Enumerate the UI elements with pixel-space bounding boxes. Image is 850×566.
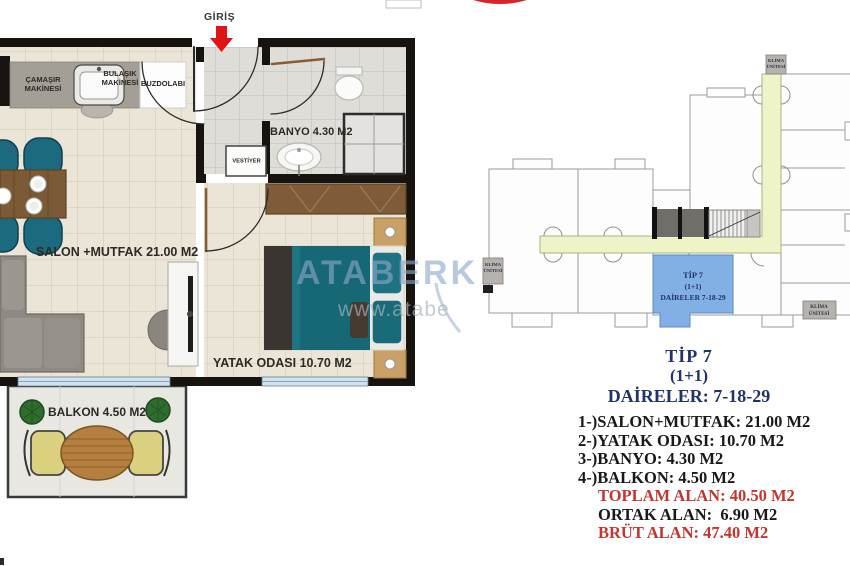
room-area-item: 3-)BANYO: 4.30 M2: [578, 450, 825, 469]
balcony: [8, 386, 186, 497]
living-room-label: SALON +MUTFAK 21.00 M2: [36, 245, 198, 259]
elevators: [652, 207, 709, 239]
entrance-label: GİRİŞ: [204, 11, 235, 23]
washer-label: ÇAMAŞIR MAKİNESİ: [12, 75, 74, 93]
watermark-url: www.atabe: [338, 298, 450, 322]
bedroom-label: YATAK ODASI 10.70 M2: [213, 356, 352, 370]
stairs-icon: [709, 210, 760, 237]
apartment-floor-plan: [0, 26, 415, 565]
room-area-list: 1-)SALON+MUTFAK: 21.00 M2 2-)YATAK ODASI…: [578, 413, 825, 487]
cropped-frame: [386, 0, 421, 8]
fridge-label: BUZDOLABI: [137, 79, 189, 88]
svg-text:KLİMA: KLİMA: [485, 262, 502, 267]
highlighted-unit-tip7: [653, 255, 733, 327]
balcony-label: BALKON 4.50 M2: [48, 405, 146, 419]
balcony-chair: [31, 431, 65, 475]
unit-plan-type: (1+1): [553, 367, 825, 385]
room-area-item: 1-)SALON+MUTFAK: 21.00 M2: [578, 413, 825, 432]
wardrobe-icon: [266, 184, 406, 214]
dining-chair: [0, 214, 18, 252]
svg-text:(1+1): (1+1): [685, 282, 702, 291]
closet-label: VESTİYER: [232, 157, 259, 163]
total-area: TOPLAM ALAN: 40.50 M2: [598, 487, 825, 506]
svg-text:KLİMA: KLİMA: [768, 58, 785, 63]
bathroom-label: BANYO 4.30 M2: [270, 126, 353, 138]
dining-set: [0, 138, 66, 254]
building-key-plan: KLİMA ÜNİTESİ KLİMA ÜNİTESİ KLİMA ÜNİTES…: [483, 55, 850, 327]
room-area-item: 2-)YATAK ODASI: 10.70 M2: [578, 432, 825, 451]
svg-text:ÜNİTESİ: ÜNİTESİ: [809, 311, 830, 317]
toilet-icon: [335, 76, 363, 100]
oven-icon: [0, 56, 10, 106]
dishwasher-label-line1: BULAŞIK: [95, 69, 145, 78]
unit-apartments: DAİRELER: 7-18-29: [553, 387, 825, 406]
area-totals: TOPLAM ALAN: 40.50 M2 ORTAK ALAN: 6.90 M…: [598, 487, 825, 543]
washer-label-line2: MAKİNESİ: [12, 84, 74, 93]
svg-text:DAİRELER 7-18-29: DAİRELER 7-18-29: [660, 292, 725, 302]
common-area: ORTAK ALAN: 6.90 M2: [598, 506, 825, 525]
svg-text:ÜNİTESİ: ÜNİTESİ: [767, 64, 786, 69]
watermark-brand: ATABERK: [296, 254, 478, 293]
svg-text:TİP 7: TİP 7: [683, 270, 704, 280]
cropped-red-logo-icon: [455, 0, 545, 4]
unit-details-panel: TİP 7 (1+1) DAİRELER: 7-18-29 1-)SALON+M…: [553, 347, 825, 543]
gross-area: BRÜT ALAN: 47.40 M2: [598, 524, 825, 543]
unit-title: TİP 7: [553, 347, 825, 366]
svg-text:KLİMA: KLİMA: [810, 304, 828, 310]
svg-text:ÜNİTESİ: ÜNİTESİ: [484, 268, 503, 273]
floor-plan-page: KLİMA ÜNİTESİ KLİMA ÜNİTESİ KLİMA ÜNİTES…: [0, 0, 850, 566]
washer-label-line1: ÇAMAŞIR: [12, 75, 74, 84]
room-area-item: 4-)BALKON: 4.50 M2: [578, 469, 825, 488]
balcony-chair: [129, 431, 163, 475]
